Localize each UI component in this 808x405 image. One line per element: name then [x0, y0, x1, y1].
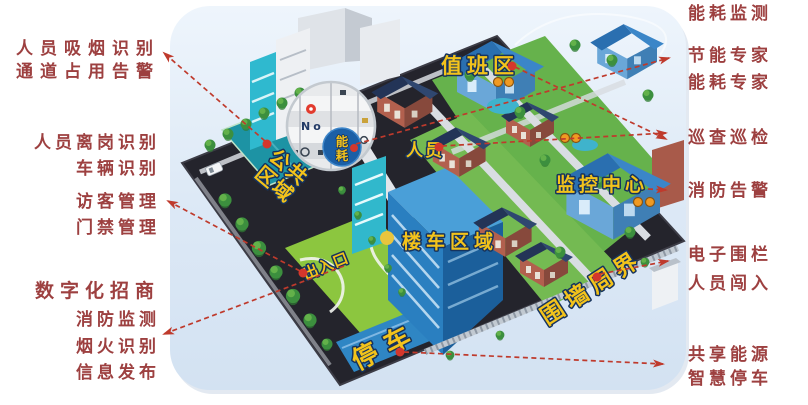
camera-icon — [505, 78, 514, 87]
camera-icon — [646, 198, 655, 207]
feature-label-visitor-management: 访客管理 — [0, 192, 160, 212]
magnifier-text: No — [301, 120, 324, 133]
dot-perimeter — [593, 273, 602, 282]
dot-tower-vehicle-area — [380, 231, 394, 245]
dot-energy — [350, 144, 358, 152]
camera-icon — [494, 78, 503, 87]
feature-label-energy-monitoring: 能耗监测 — [688, 4, 772, 24]
feature-label-electronic-fence: 电子围栏 — [688, 245, 772, 265]
feature-label-energy-expert: 能耗专家 — [688, 73, 772, 93]
feature-label-off-duty-detection: 人员离岗识别 — [0, 133, 160, 153]
energy-label-line1: 能 — [336, 134, 349, 149]
dot-entrance — [299, 269, 308, 278]
feature-label-fire-alarm: 消防告警 — [688, 181, 772, 201]
feature-label-smoking-detection: 人员吸烟识别 — [0, 39, 160, 59]
zone-label-tower-vehicle-area: 楼车区域 — [402, 230, 498, 253]
feature-label-energy-saving-expert: 节能专家 — [688, 46, 772, 66]
camera-icon — [561, 134, 570, 143]
camera-icon — [634, 198, 643, 207]
dot-duty-area — [508, 62, 517, 71]
feature-label-shared-energy: 共享能源 — [688, 345, 772, 365]
feature-label-corridor-alarm: 通道占用告警 — [0, 62, 160, 82]
feature-label-patrol-inspection: 巡查巡检 — [688, 128, 772, 148]
dot-parking — [396, 348, 405, 357]
feature-label-fire-monitoring: 消防监测 — [0, 310, 160, 330]
dot-personnel — [435, 143, 444, 152]
feature-label-smart-parking: 智慧停车 — [688, 369, 772, 389]
feature-label-access-control: 门禁管理 — [0, 218, 160, 238]
zone-label-monitoring-center: 监控中心 — [556, 173, 648, 196]
dot-public-area — [263, 140, 272, 149]
energy-label-line2: 耗 — [336, 148, 349, 163]
feature-label-intrusion: 人员闯入 — [688, 274, 772, 294]
zone-label-duty-area: 值班区 — [441, 54, 519, 78]
feature-label-digital-investment: 数字化招商 — [0, 280, 160, 303]
feature-label-info-publishing: 信息发布 — [0, 363, 160, 383]
feature-label-smoke-fire-detection: 烟火识别 — [0, 337, 160, 357]
feature-label-vehicle-recognition: 车辆识别 — [0, 159, 160, 179]
